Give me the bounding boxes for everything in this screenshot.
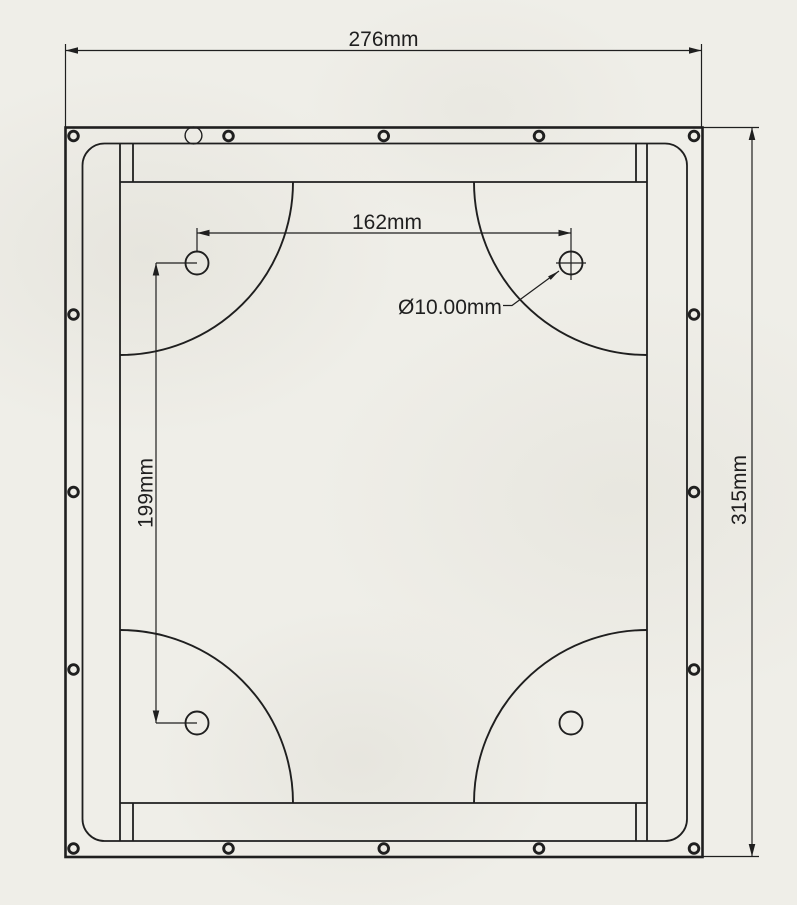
arrowhead-left [66, 47, 79, 54]
arrowhead-bottom [153, 711, 160, 724]
screw-hole [689, 310, 699, 320]
screw-hole [689, 487, 699, 497]
screw-hole [69, 665, 79, 675]
dim-overall-height: 315mm [703, 128, 759, 857]
screw-hole [534, 844, 544, 854]
screw-hole [69, 844, 79, 854]
screw-hole [69, 131, 79, 141]
arrowhead-top [749, 128, 756, 141]
arrowhead-leader [548, 271, 559, 280]
screw-hole [534, 131, 544, 141]
dim-label-overall-height: 315mm [728, 455, 751, 525]
dim-label-hole-pitch-x: 162mm [352, 211, 422, 234]
dim-hole-diameter: Ø10.00mm [398, 271, 559, 319]
screw-hole [689, 131, 699, 141]
plate-inner-frame [83, 144, 688, 842]
screw-hole [689, 665, 699, 675]
dim-label-hole-pitch-y: 199mm [135, 458, 158, 528]
screw-hole [379, 844, 389, 854]
screw-hole [69, 310, 79, 320]
dimensions: 276mm 315mm 162mm 199mm [66, 28, 760, 857]
arrowhead-right [559, 230, 572, 237]
screw-hole [224, 844, 234, 854]
dim-label-overall-width: 276mm [348, 28, 418, 51]
top-edge-round-hole [185, 127, 202, 144]
dim-label-hole-diameter: Ø10.00mm [398, 296, 502, 319]
dim-hole-pitch-y: 199mm [135, 263, 198, 723]
screw-hole [689, 844, 699, 854]
inner-panel [120, 144, 647, 842]
screw-hole [69, 487, 79, 497]
plate-outline [66, 128, 703, 858]
screw-hole [224, 131, 234, 141]
arrowhead-right [689, 47, 702, 54]
technical-drawing-canvas: 276mm 315mm 162mm 199mm [0, 0, 797, 905]
mounting-hole-bottom-right [560, 712, 583, 735]
arrowhead-top [153, 263, 160, 276]
arrowhead-bottom [749, 844, 756, 857]
dim-hole-pitch-x: 162mm [197, 211, 571, 280]
perimeter-screw-holes [69, 131, 699, 853]
plate-outer-edge [66, 128, 703, 858]
arrowhead-left [197, 230, 210, 237]
screw-hole [379, 131, 389, 141]
mounting-holes [186, 252, 587, 735]
dim-overall-width: 276mm [66, 28, 702, 127]
